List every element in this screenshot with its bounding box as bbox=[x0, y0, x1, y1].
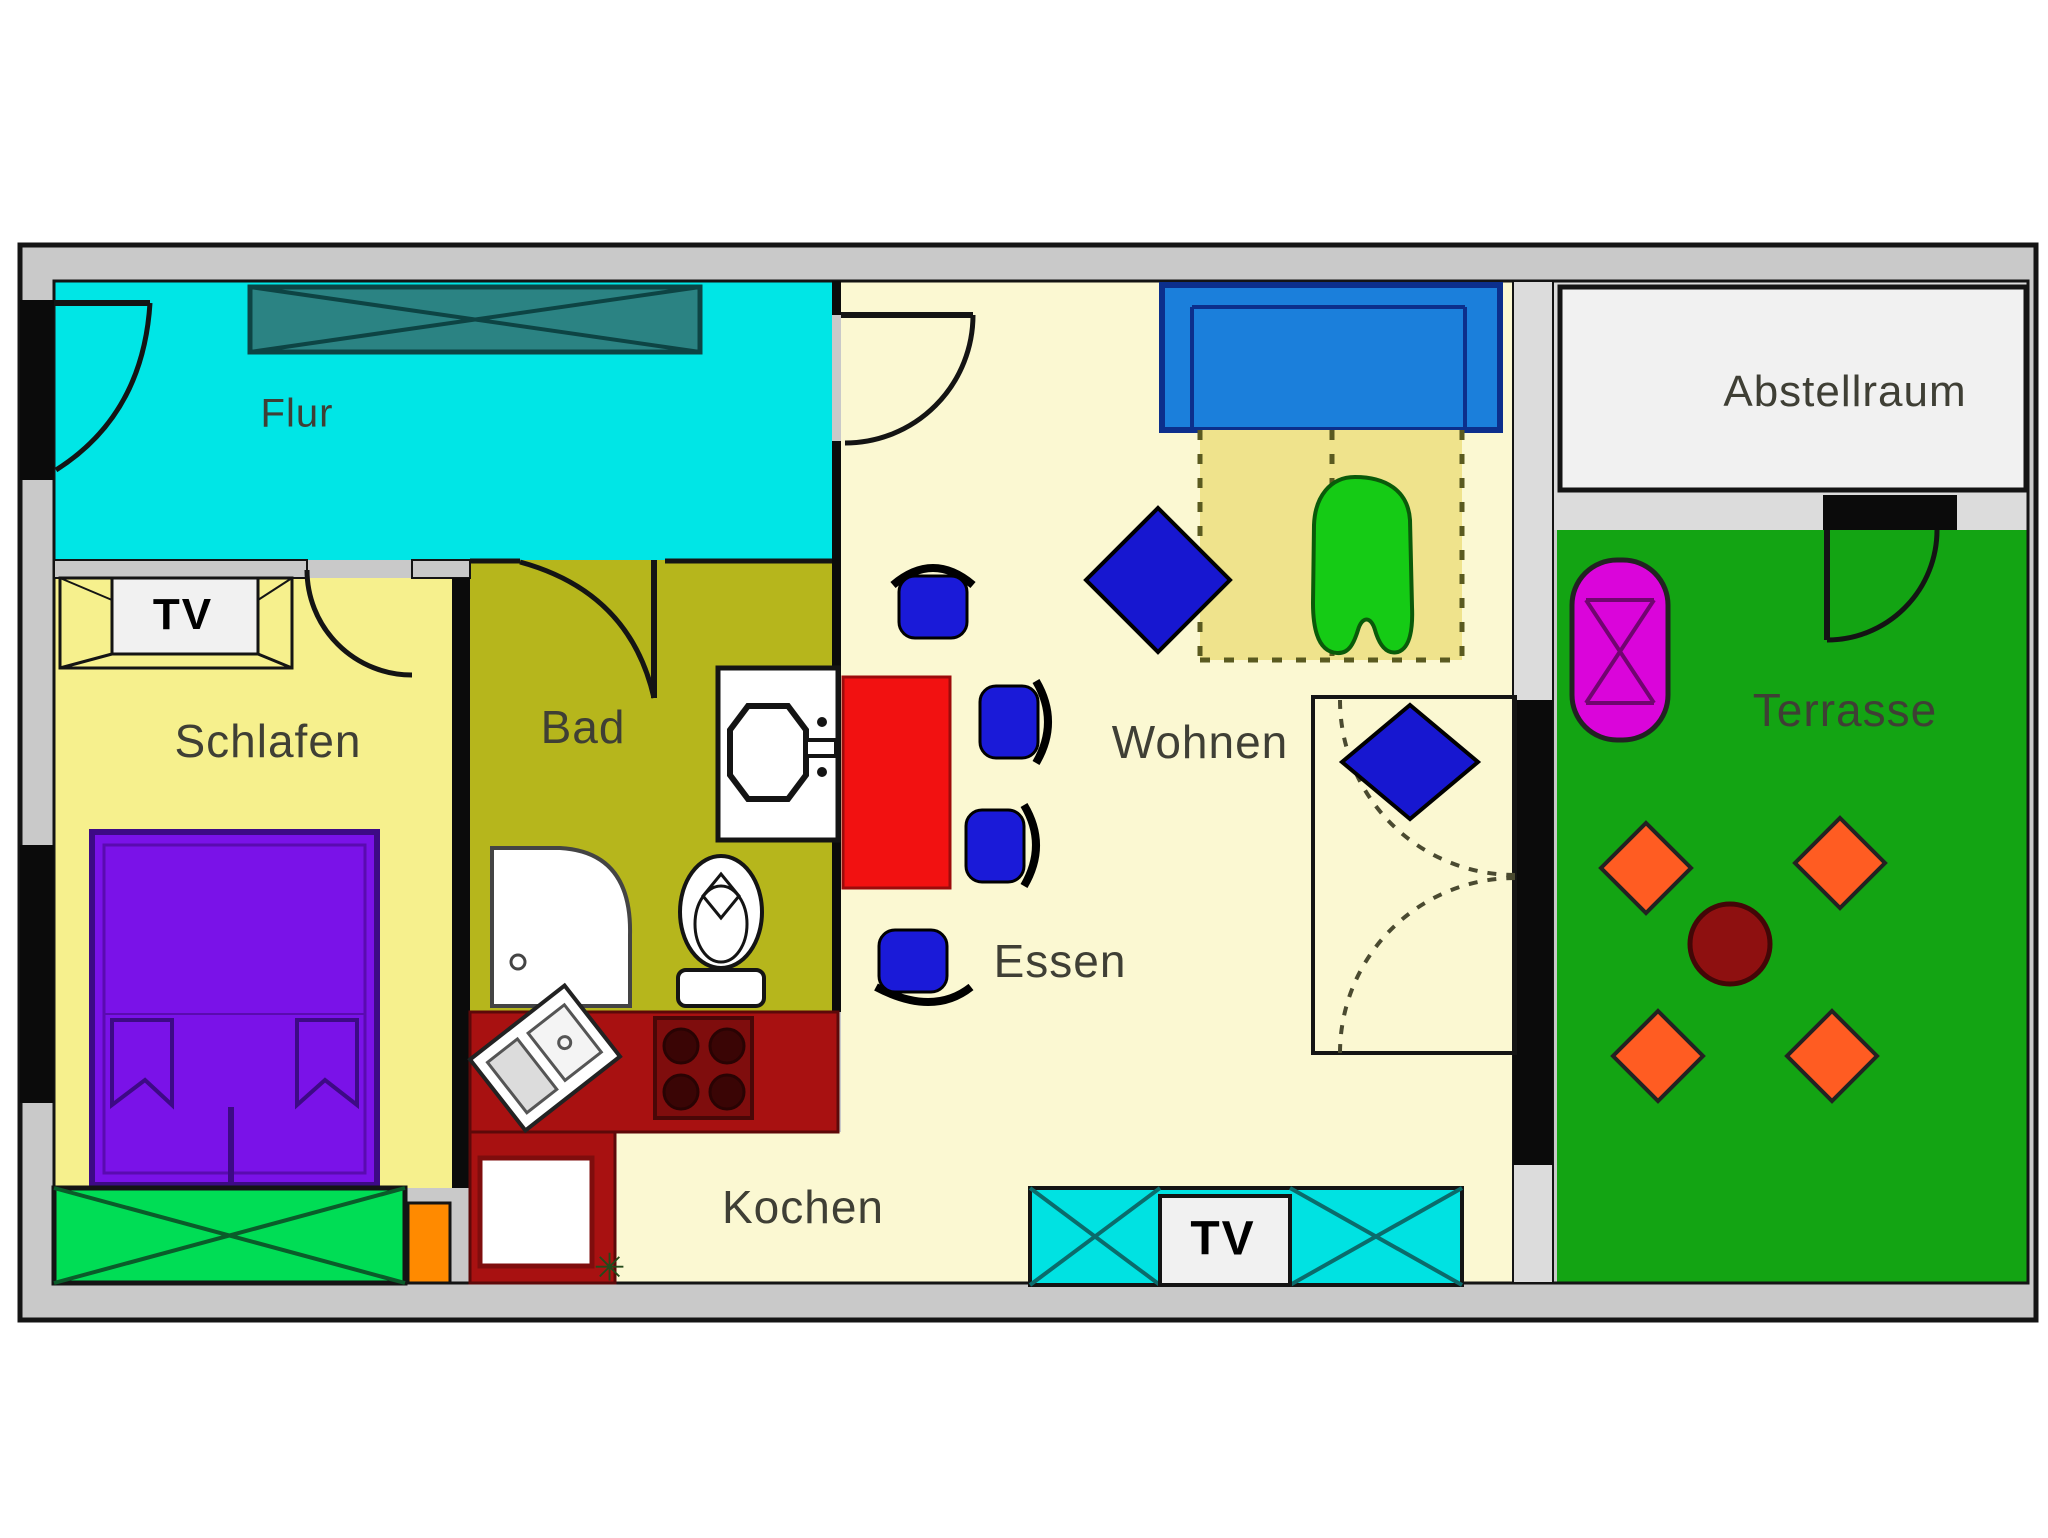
wall-flur-wohnen bbox=[832, 281, 841, 315]
floorplan-drawing bbox=[0, 0, 2048, 1538]
wall-flur-schlafen bbox=[412, 560, 470, 578]
chair bbox=[980, 686, 1038, 758]
kitchen-appliance bbox=[480, 1158, 592, 1266]
orange-block bbox=[408, 1203, 450, 1283]
terrace-table bbox=[1690, 904, 1770, 984]
stove-burner bbox=[664, 1075, 698, 1109]
room-label-flur: Flur bbox=[261, 392, 334, 437]
wall-wohnen-terrasse-black bbox=[1513, 700, 1553, 1165]
room-label-schlafen: Schlafen bbox=[174, 714, 361, 768]
tv-label-wohnen: TV bbox=[1190, 1212, 1255, 1267]
left-wall-black-segment bbox=[20, 845, 54, 1103]
stove-burner bbox=[710, 1075, 744, 1109]
wall-flur-schlafen bbox=[54, 560, 307, 578]
faucet-knob bbox=[817, 717, 827, 727]
double-bed bbox=[92, 832, 377, 1185]
left-wall-black-segment bbox=[20, 300, 54, 480]
room-label-wohnen: Wohnen bbox=[1112, 715, 1289, 769]
stove-burner bbox=[710, 1029, 744, 1063]
dining-table bbox=[843, 677, 950, 888]
plant-marker: ✳ bbox=[594, 1246, 627, 1291]
room-label-terrasse: Terrasse bbox=[1753, 683, 1937, 737]
room-label-bad: Bad bbox=[541, 700, 626, 754]
toilet-tank bbox=[678, 970, 764, 1006]
washbasin-bowl bbox=[730, 706, 806, 799]
tv-label-schlafen: TV bbox=[153, 590, 213, 640]
room-label-kochen: Kochen bbox=[722, 1180, 884, 1234]
chair bbox=[966, 810, 1024, 882]
washbasin-faucet bbox=[806, 740, 836, 756]
floorplan-page: Flur Schlafen Bad Kochen Essen Wohnen Ab… bbox=[0, 0, 2048, 1538]
room-label-essen: Essen bbox=[994, 934, 1127, 988]
wall-schlafen-bad bbox=[452, 578, 470, 1188]
chair bbox=[899, 576, 967, 638]
stove-burner bbox=[664, 1029, 698, 1063]
chair bbox=[879, 930, 947, 992]
terrace-door-header bbox=[1823, 495, 1957, 530]
room-label-abstellraum: Abstellraum bbox=[1723, 367, 1966, 417]
shower-tray bbox=[492, 848, 630, 1006]
faucet-knob bbox=[817, 767, 827, 777]
